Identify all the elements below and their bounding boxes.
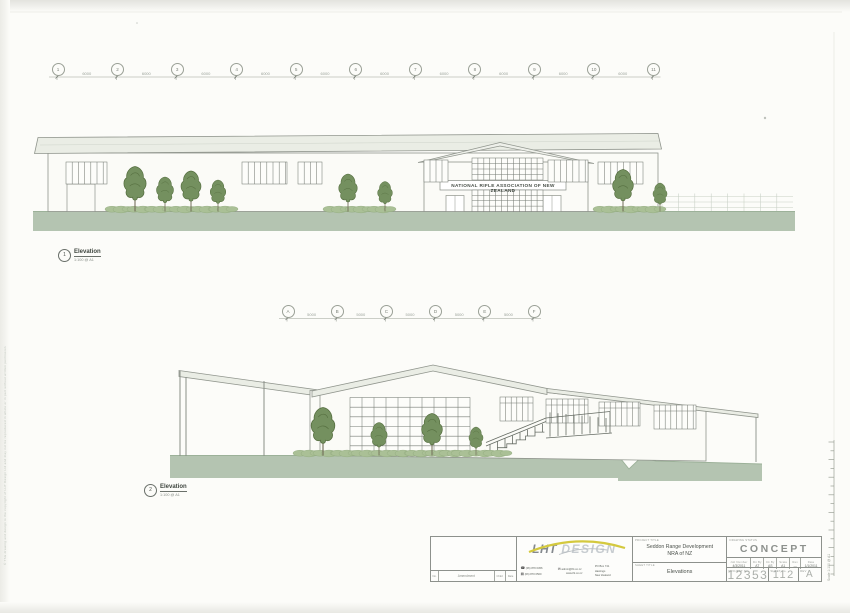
sheet-title: Elevations [633,569,727,575]
grid-dimension: 5000 [297,312,327,317]
elevation-1-label: 1 Elevation 1:100 @ A1 [58,249,101,262]
logo-section: LHT DESIGN ☎(06) 870 0456 ▤(06) 870 0500… [517,537,633,581]
grid-bubble: 6 [349,63,362,76]
elevation-2-title: Elevation [160,484,187,492]
fax-icon: ▤ [521,572,524,576]
address-line: New Zealand [595,574,628,577]
grid-bubble: 3 [171,63,184,76]
drawing-numbers-row: PROJECT No. 12353 SHEET No. 112 REV A [727,567,821,581]
email-column: ✉admin@lht.co.nz www.lht.co.nz [556,563,593,579]
grid-bubble: 4 [230,63,243,76]
elevation-2-number-bubble: 2 [144,484,157,497]
sheet-number-cell: SHEET No. 112 [769,568,799,581]
elevation-drawing-canvas [0,0,850,613]
scanned-drawing-sheet: 1600026000360004600056000660007600086000… [0,0,850,613]
address-column: PO Box 741 Hastings New Zealand [593,563,630,579]
grid-bubble: C [380,305,393,318]
phone-number: (06) 870 0456 [526,567,543,570]
address-line: PO Box 741 [595,565,628,568]
amendment-date-label: Date [506,571,516,581]
grid-dimension: 6000 [608,71,638,76]
elevation-2-label: 2 Elevation 1:100 @ A1 [144,484,187,497]
amendment-chkd-label: Chkd [495,571,506,581]
project-title: Seddon Range Development NRA of NZ [633,544,727,557]
elevation-2-drawing [170,365,762,481]
grid-bubble: 11 [647,63,660,76]
building-sign-text: NATIONAL RIFLE ASSOCIATION OF NEW ZEALAN… [438,183,568,193]
revision-letter: A [806,569,814,581]
project-section: PROJECT TITLE Seddon Range Development N… [633,537,728,581]
grid-dimension: 6000 [72,71,102,76]
amendment-section: No. Amendment Chkd Date [431,537,517,581]
grid-bubble: F [528,305,541,318]
email-address: admin@lht.co.nz [562,568,582,571]
elevation-1-title: Elevation [74,249,101,257]
grid-dimension: 5000 [346,312,376,317]
grid-dimension: 6000 [429,71,459,76]
grid-bubble: 7 [409,63,422,76]
grid-dimension: 6000 [131,71,161,76]
project-title-caption: PROJECT TITLE [635,538,659,542]
grid-dimension: 5000 [493,312,523,317]
revision-cell: REV A [799,568,821,581]
title-block: No. Amendment Chkd Date LHT DESIGN ☎(06)… [430,536,822,582]
project-number-cell: PROJECT No. 12353 [727,568,769,581]
grid-bubble: E [478,305,491,318]
grid-dimension: 6000 [310,71,340,76]
amendment-label: Amendment [439,571,495,581]
fax-number: (06) 870 0500 [525,573,542,576]
grid-bubble: 1 [52,63,65,76]
address-line: Hastings [595,570,628,573]
drawing-status-value: CONCEPT [727,543,821,555]
elevation-2-scale: 1:100 @ A1 [160,493,187,497]
phone-column: ☎(06) 870 0456 ▤(06) 870 0500 [519,563,556,579]
sheet-title-caption: SHEET TITLE [635,563,655,567]
grid-bubble: A [282,305,295,318]
grid-dimension: 6000 [489,71,519,76]
grid-dimension: 6000 [548,71,578,76]
grid-dimension: 5000 [395,312,425,317]
grid-dimension: 6000 [191,71,221,76]
grid-bubble: 9 [528,63,541,76]
grid-bubble: D [429,305,442,318]
drawing-status-caption: DRAWING STATUS [729,538,757,542]
contact-details: ☎(06) 870 0456 ▤(06) 870 0500 ✉admin@lht… [519,563,630,579]
grid-bubble: 2 [111,63,124,76]
grid-dimension: 5000 [444,312,474,317]
logo-swoosh-icon [525,537,629,557]
email-icon: ✉ [558,567,561,571]
website: www.lht.co.nz [558,572,591,575]
amendment-no-label: No. [431,571,439,581]
grid-bubble: B [331,305,344,318]
grid-dimension: 6000 [370,71,400,76]
copyright-side-note: © This drawing and design is the copyrig… [3,346,7,565]
phone-icon: ☎ [521,566,525,570]
grid-dimension: 6000 [250,71,280,76]
amendment-strip: No. Amendment Chkd Date [431,570,516,581]
elevation-1-drawing [33,134,795,232]
scale-strip-note: Scale 1:100 @ A1 [827,554,831,581]
grid-bubble: 8 [468,63,481,76]
grid-bubble: 5 [290,63,303,76]
elevation-1-scale: 1:100 @ A1 [74,258,101,262]
grid-bubble: 10 [587,63,600,76]
status-section: DRAWING STATUS CONCEPT Job Number4/3/201… [727,537,821,581]
elevation-1-number-bubble: 1 [58,249,71,262]
